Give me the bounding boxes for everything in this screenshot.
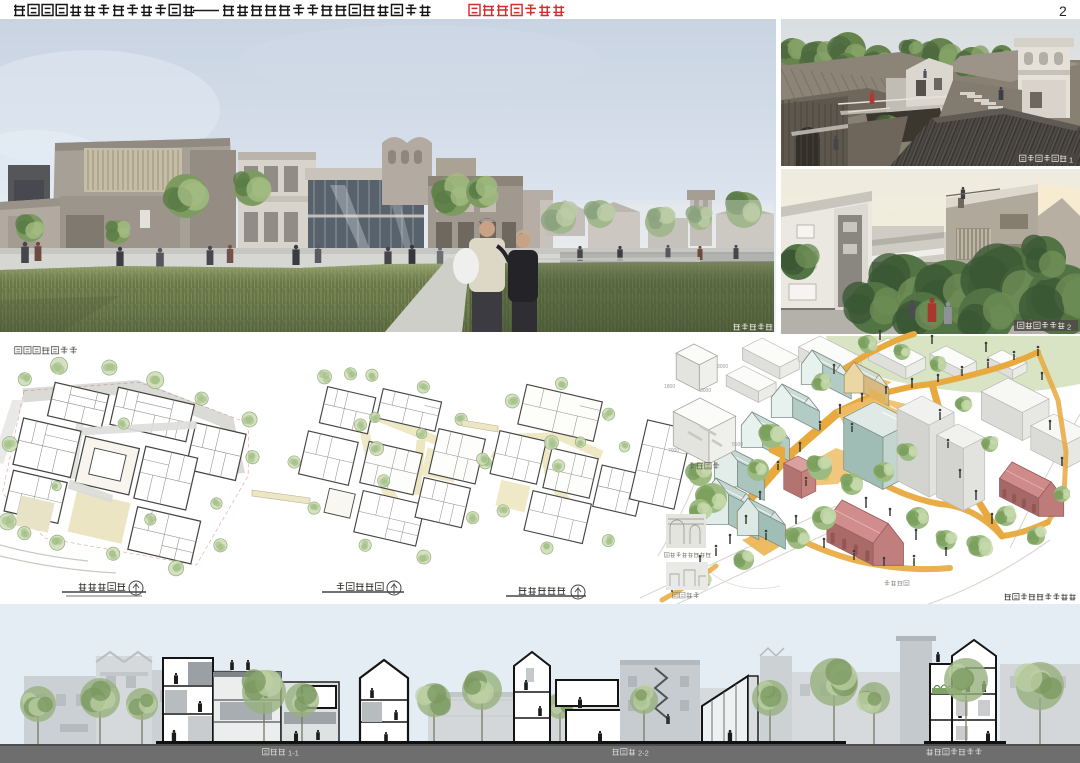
svg-text:1-1: 1-1 [288, 749, 299, 758]
svg-text:2-2: 2-2 [638, 749, 649, 758]
svg-text:2: 2 [1067, 323, 1071, 332]
svg-text:1800: 1800 [664, 384, 675, 390]
svg-text:5500: 5500 [732, 442, 743, 448]
svg-text:3000: 3000 [700, 388, 711, 394]
svg-text:7000: 7000 [668, 448, 679, 454]
svg-text:3000: 3000 [717, 364, 728, 370]
svg-text:1: 1 [1069, 156, 1073, 165]
svg-text:2: 2 [1059, 3, 1067, 19]
